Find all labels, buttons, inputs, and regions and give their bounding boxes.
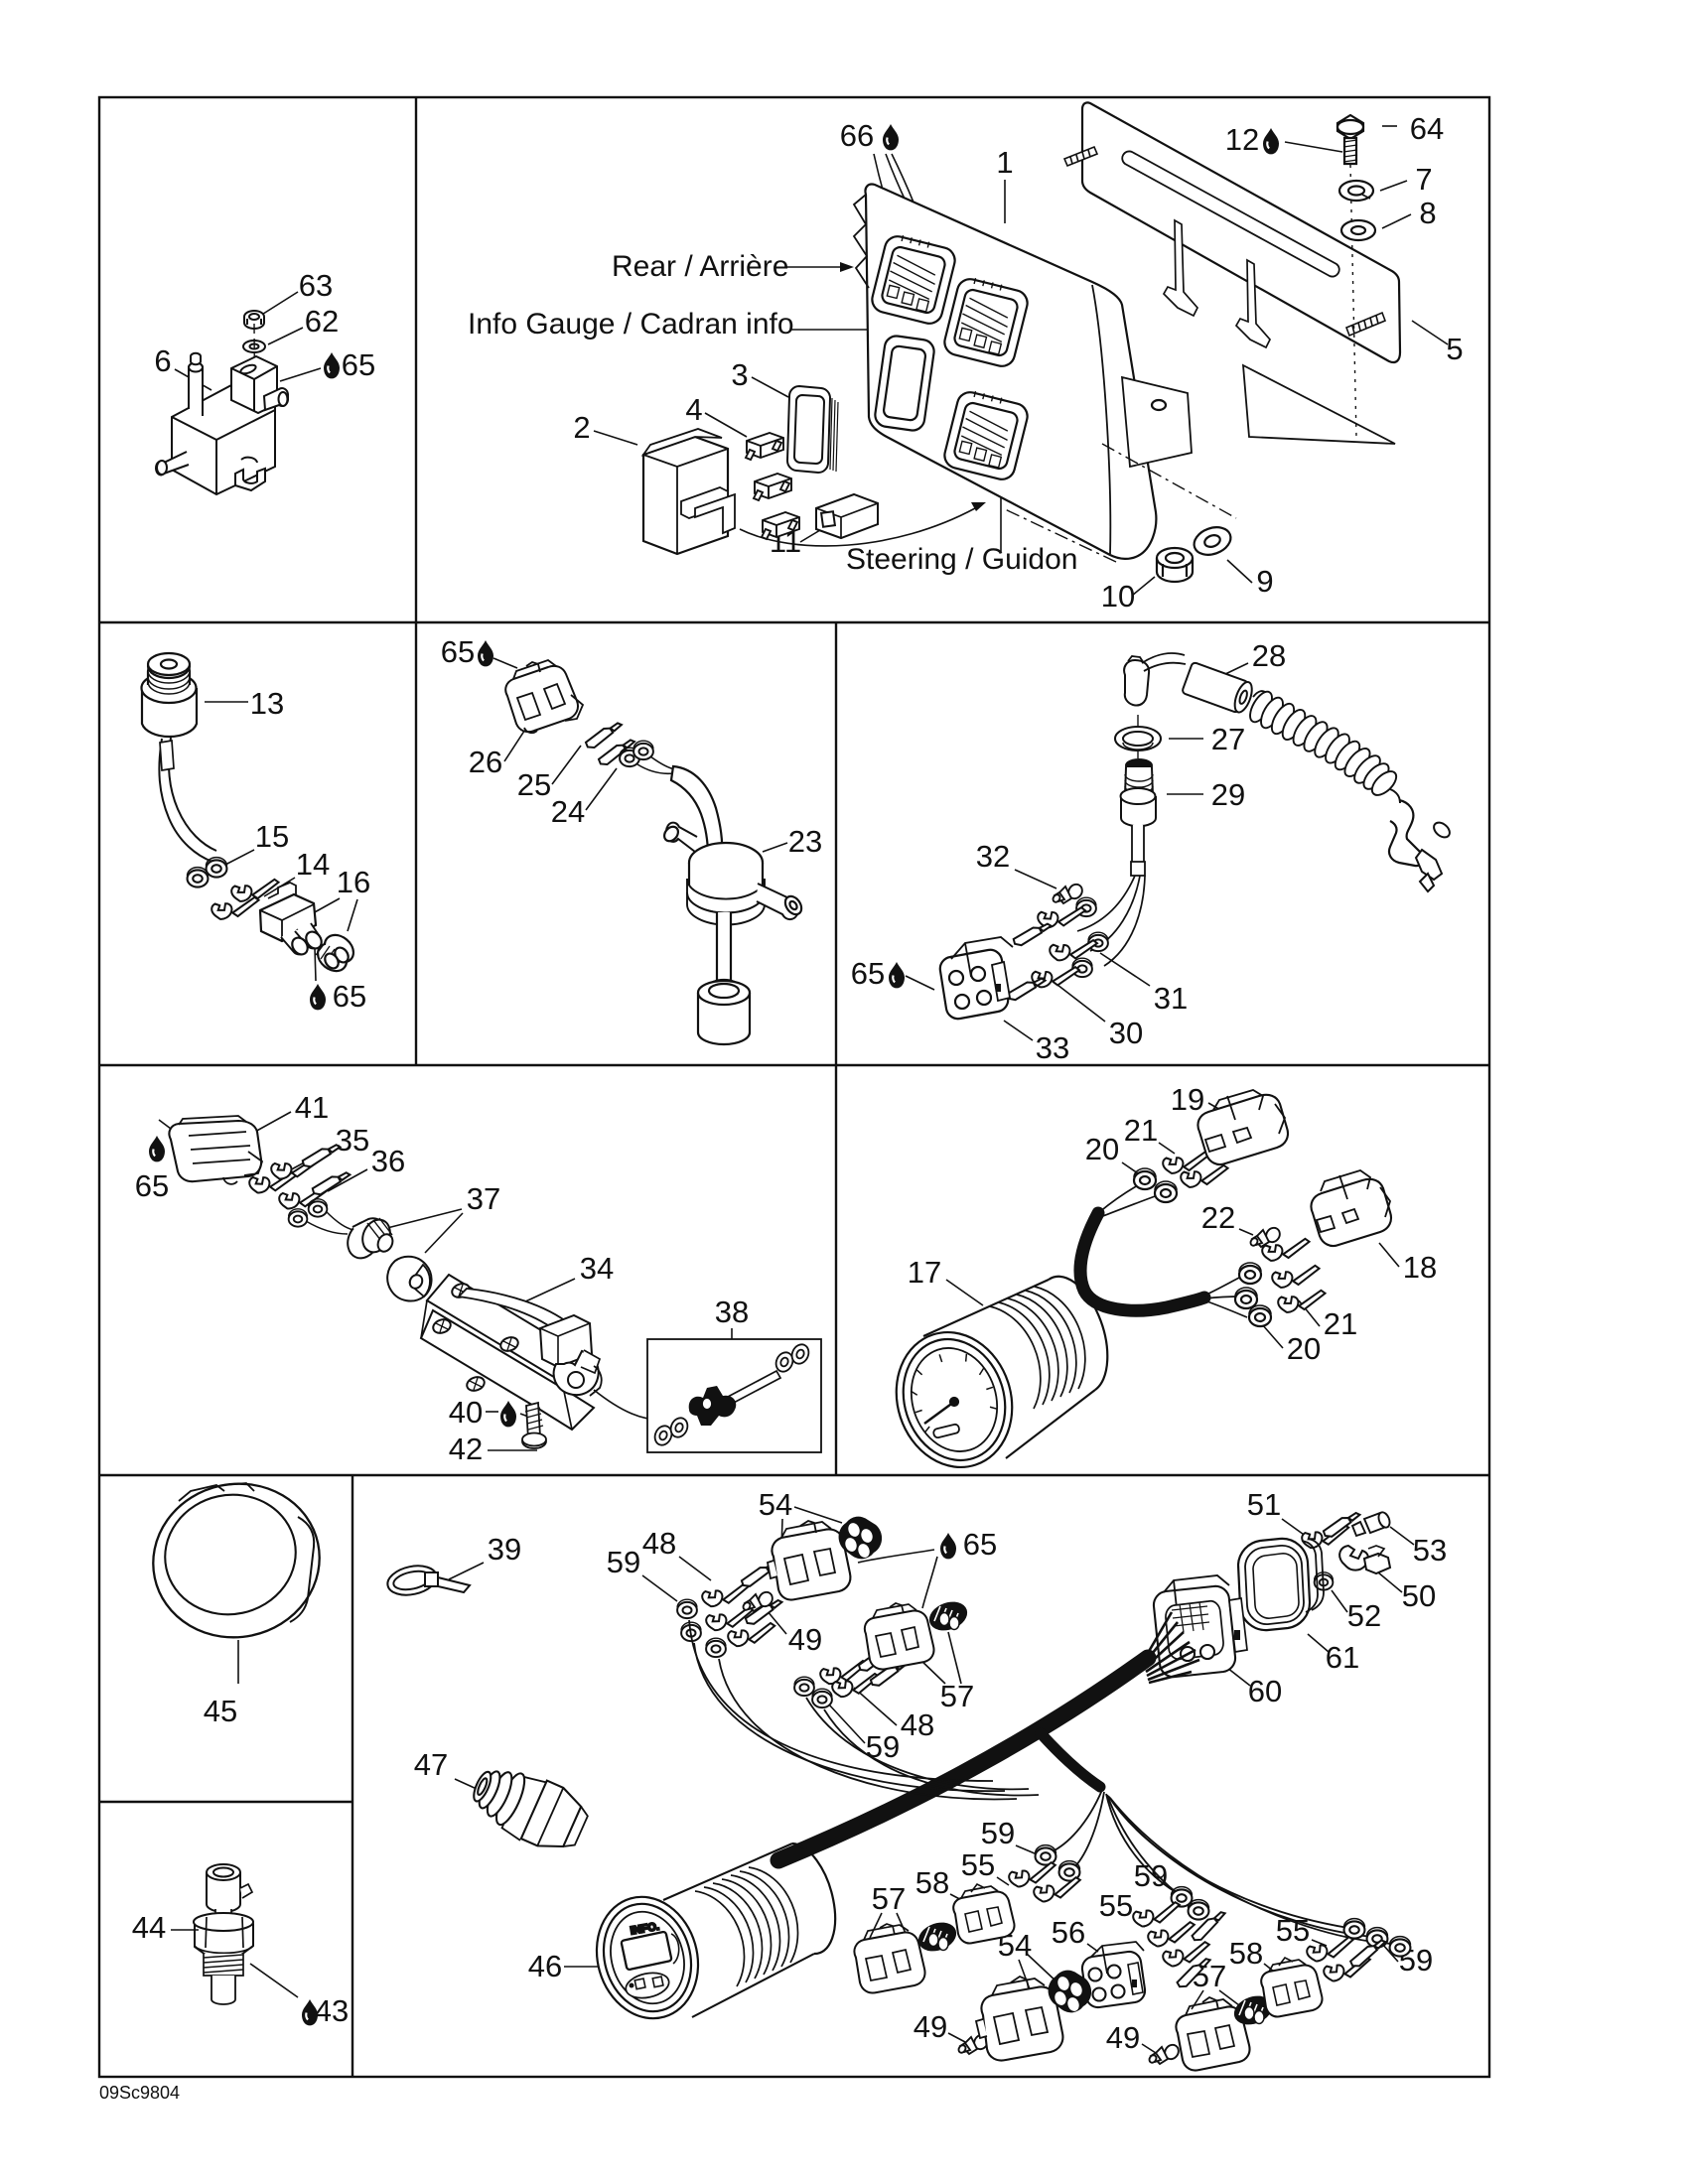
- svg-text:26: 26: [469, 745, 502, 779]
- svg-text:21: 21: [1124, 1113, 1158, 1148]
- svg-text:38: 38: [715, 1295, 749, 1329]
- svg-text:12: 12: [1225, 122, 1259, 157]
- svg-text:49: 49: [914, 2009, 947, 2044]
- svg-text:41: 41: [295, 1090, 329, 1125]
- svg-text:30: 30: [1109, 1016, 1143, 1050]
- svg-text:3: 3: [731, 357, 748, 392]
- svg-text:66: 66: [840, 118, 874, 153]
- svg-text:59: 59: [607, 1545, 640, 1579]
- svg-text:57: 57: [940, 1679, 974, 1713]
- svg-text:53: 53: [1413, 1533, 1447, 1568]
- svg-text:65: 65: [963, 1527, 997, 1562]
- svg-text:8: 8: [1419, 196, 1436, 230]
- svg-text:37: 37: [467, 1181, 500, 1216]
- svg-text:49: 49: [788, 1622, 822, 1657]
- svg-text:24: 24: [551, 794, 585, 829]
- svg-text:59: 59: [1134, 1858, 1168, 1893]
- svg-text:65: 65: [441, 634, 475, 669]
- svg-text:18: 18: [1403, 1250, 1437, 1285]
- svg-text:35: 35: [336, 1123, 369, 1158]
- svg-text:55: 55: [961, 1847, 995, 1882]
- svg-text:10: 10: [1101, 579, 1135, 614]
- svg-text:47: 47: [414, 1747, 448, 1782]
- svg-text:51: 51: [1247, 1487, 1281, 1522]
- svg-text:54: 54: [759, 1487, 792, 1522]
- svg-text:65: 65: [342, 347, 375, 382]
- svg-text:34: 34: [580, 1251, 614, 1286]
- svg-text:60: 60: [1248, 1674, 1282, 1708]
- svg-text:20: 20: [1287, 1331, 1321, 1366]
- svg-text:63: 63: [299, 268, 333, 303]
- svg-text:65: 65: [135, 1168, 169, 1203]
- svg-text:32: 32: [976, 839, 1010, 874]
- svg-text:39: 39: [488, 1532, 521, 1567]
- svg-text:44: 44: [132, 1910, 166, 1945]
- svg-text:16: 16: [337, 865, 370, 899]
- svg-text:13: 13: [250, 686, 284, 721]
- svg-text:9: 9: [1256, 564, 1273, 599]
- svg-text:31: 31: [1154, 981, 1188, 1016]
- svg-text:Info Gauge / Cadran info: Info Gauge / Cadran info: [468, 308, 794, 341]
- svg-text:59: 59: [866, 1729, 900, 1764]
- svg-text:15: 15: [255, 819, 289, 854]
- svg-text:48: 48: [901, 1707, 934, 1742]
- svg-text:42: 42: [449, 1432, 483, 1466]
- svg-text:4: 4: [685, 392, 702, 427]
- svg-text:52: 52: [1347, 1598, 1381, 1633]
- svg-text:58: 58: [1229, 1936, 1263, 1971]
- svg-text:65: 65: [851, 956, 885, 991]
- svg-text:61: 61: [1326, 1640, 1359, 1675]
- svg-text:55: 55: [1099, 1888, 1133, 1923]
- svg-text:48: 48: [642, 1526, 676, 1561]
- svg-text:14: 14: [296, 847, 330, 882]
- svg-text:65: 65: [333, 979, 366, 1014]
- svg-text:6: 6: [154, 343, 171, 378]
- svg-text:29: 29: [1211, 777, 1245, 812]
- svg-text:19: 19: [1171, 1082, 1204, 1117]
- svg-text:46: 46: [528, 1949, 562, 1983]
- svg-text:64: 64: [1410, 111, 1444, 146]
- svg-text:22: 22: [1201, 1200, 1235, 1235]
- svg-text:25: 25: [517, 767, 551, 802]
- svg-text:45: 45: [204, 1694, 237, 1728]
- svg-text:17: 17: [908, 1255, 941, 1290]
- svg-text:59: 59: [981, 1816, 1015, 1850]
- svg-text:1: 1: [996, 145, 1013, 180]
- svg-text:57: 57: [1193, 1959, 1226, 1993]
- svg-text:21: 21: [1324, 1306, 1357, 1341]
- svg-text:50: 50: [1402, 1578, 1436, 1613]
- svg-text:5: 5: [1446, 332, 1463, 366]
- svg-text:Steering / Guidon: Steering / Guidon: [846, 543, 1077, 576]
- svg-text:Rear / Arrière: Rear / Arrière: [612, 250, 788, 283]
- svg-text:7: 7: [1415, 162, 1432, 197]
- svg-text:28: 28: [1252, 638, 1286, 673]
- svg-text:49: 49: [1106, 2020, 1140, 2055]
- svg-text:62: 62: [305, 304, 339, 339]
- svg-text:43: 43: [315, 1993, 349, 2028]
- svg-text:57: 57: [872, 1881, 906, 1916]
- svg-text:58: 58: [915, 1865, 949, 1900]
- svg-text:09Sc9804: 09Sc9804: [99, 2083, 180, 2103]
- svg-text:40: 40: [449, 1395, 483, 1430]
- svg-text:56: 56: [1052, 1915, 1085, 1950]
- svg-text:2: 2: [573, 410, 590, 445]
- svg-text:23: 23: [788, 824, 822, 859]
- svg-text:27: 27: [1211, 722, 1245, 756]
- svg-text:33: 33: [1036, 1030, 1069, 1065]
- svg-text:36: 36: [371, 1144, 405, 1178]
- svg-text:20: 20: [1085, 1132, 1119, 1166]
